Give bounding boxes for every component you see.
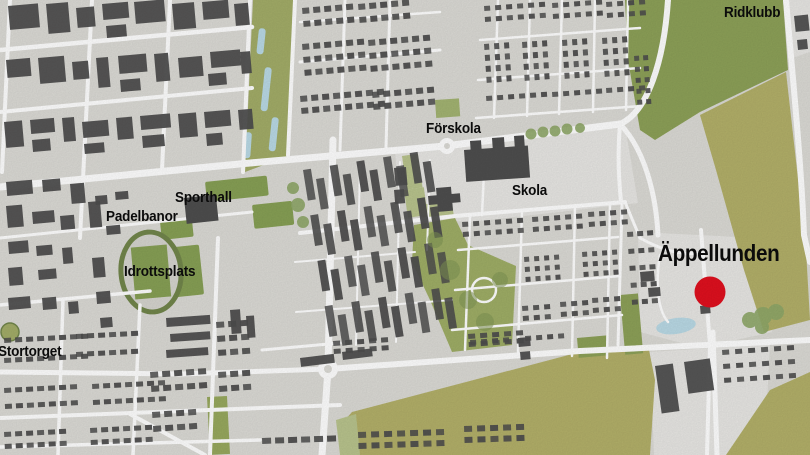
label-ridklubb: Ridklubb (724, 5, 780, 20)
label-skola: Skola (512, 183, 547, 198)
label-stortorget: Stortorget (0, 344, 61, 359)
label-idrottsplats: Idrottsplats (124, 264, 195, 279)
label-sporthall: Sporthall (175, 190, 232, 205)
map-canvas: Stortorget Padelbanor Sporthall Idrottsp… (0, 0, 810, 455)
label-forskola: Förskola (426, 121, 481, 136)
map-graphic (0, 0, 810, 455)
label-padelbanor: Padelbanor (106, 209, 178, 224)
label-appellunden: Äppellunden (658, 242, 779, 265)
grain-overlay (0, 0, 810, 455)
